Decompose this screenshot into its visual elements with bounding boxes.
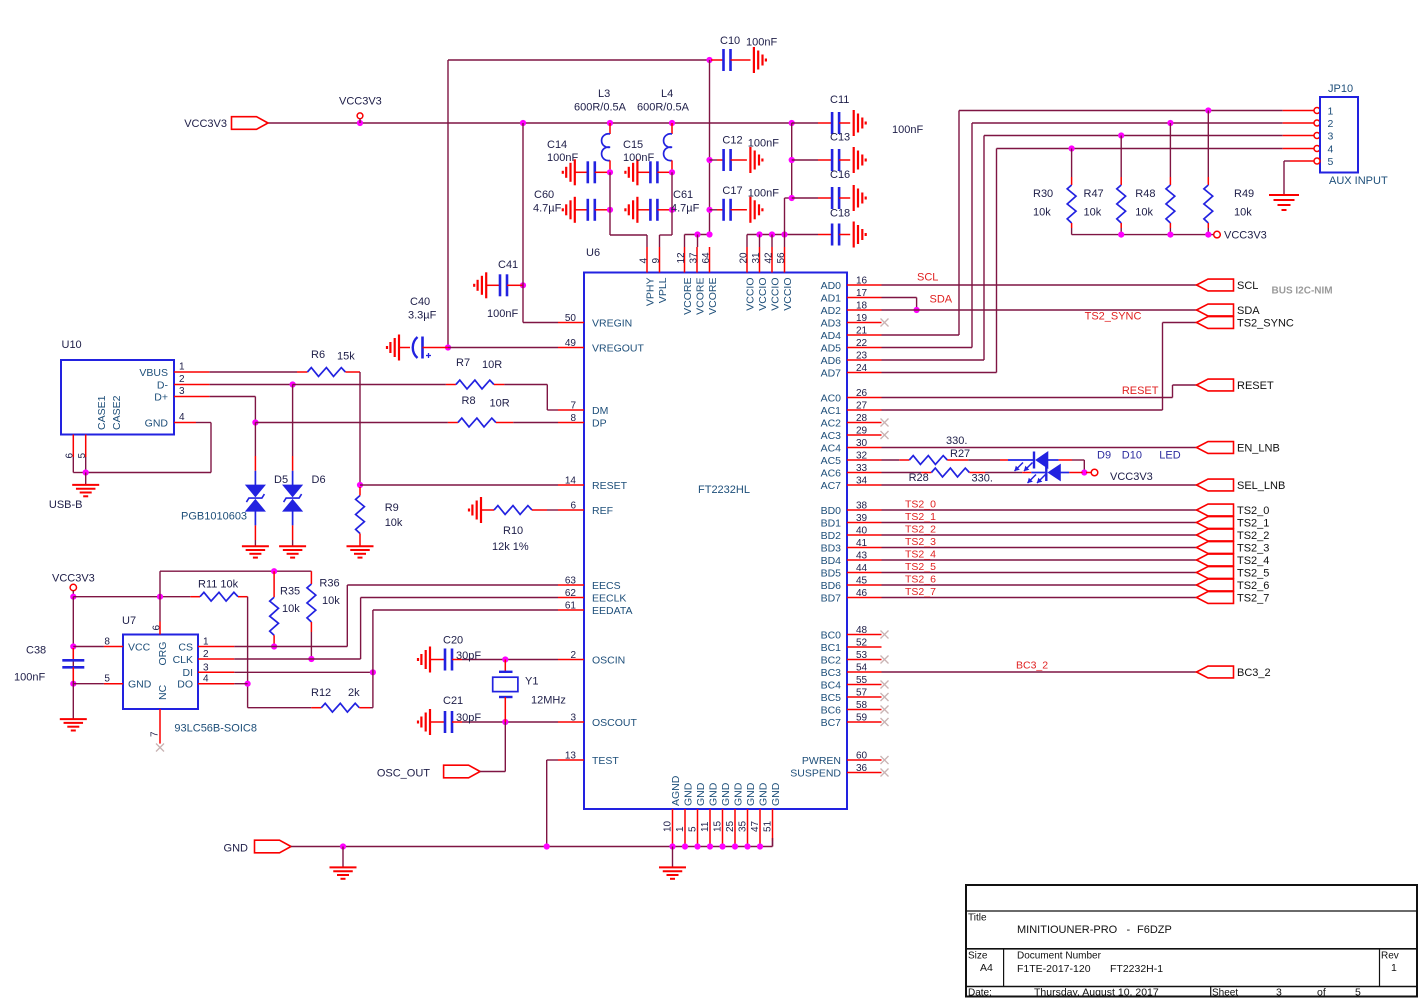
svg-text:30: 30 xyxy=(856,438,868,449)
svg-text:5: 5 xyxy=(688,826,699,832)
svg-text:C16: C16 xyxy=(830,169,850,181)
svg-text:55: 55 xyxy=(856,675,868,686)
svg-text:U7: U7 xyxy=(122,615,136,627)
svg-text:10R: 10R xyxy=(482,359,502,371)
svg-text:TS2_3: TS2_3 xyxy=(905,536,936,548)
svg-text:330.: 330. xyxy=(946,435,967,447)
svg-text:40: 40 xyxy=(856,526,868,537)
svg-text:3: 3 xyxy=(570,713,576,724)
svg-text:AC7: AC7 xyxy=(821,480,842,492)
svg-text:C17: C17 xyxy=(722,185,742,197)
svg-text:AD5: AD5 xyxy=(821,342,842,354)
svg-text:C15: C15 xyxy=(623,139,643,151)
svg-text:BC1: BC1 xyxy=(821,642,842,654)
svg-text:10k: 10k xyxy=(1084,207,1102,219)
svg-text:16: 16 xyxy=(856,276,868,287)
svg-text:24: 24 xyxy=(856,363,868,374)
svg-text:A4: A4 xyxy=(980,962,993,974)
svg-text:10k: 10k xyxy=(322,595,340,607)
svg-text:VREGOUT: VREGOUT xyxy=(592,342,645,354)
svg-text:CLK: CLK xyxy=(173,654,193,666)
svg-text:CASE1: CASE1 xyxy=(96,395,108,430)
svg-text:BD5: BD5 xyxy=(821,567,842,579)
svg-text:AD3: AD3 xyxy=(821,317,842,329)
svg-text:59: 59 xyxy=(856,713,868,724)
svg-text:BC7: BC7 xyxy=(821,717,842,729)
svg-text:TS2_3: TS2_3 xyxy=(1237,543,1269,555)
svg-text:R7: R7 xyxy=(456,357,470,369)
svg-text:AC4: AC4 xyxy=(821,442,842,454)
svg-text:AC2: AC2 xyxy=(821,417,842,429)
svg-text:TS2_1: TS2_1 xyxy=(905,511,936,523)
svg-text:52: 52 xyxy=(856,638,868,649)
svg-text:93LC56B-SOIC8: 93LC56B-SOIC8 xyxy=(174,723,257,735)
svg-text:TS2_1: TS2_1 xyxy=(1237,518,1269,530)
svg-text:Date:: Date: xyxy=(968,988,992,999)
svg-text:57: 57 xyxy=(856,688,868,699)
svg-text:50: 50 xyxy=(565,313,577,324)
svg-text:TS2_5: TS2_5 xyxy=(905,561,936,573)
svg-text:18: 18 xyxy=(856,301,868,312)
svg-text:100nF: 100nF xyxy=(748,188,779,200)
svg-text:-: - xyxy=(1127,924,1131,936)
svg-text:46: 46 xyxy=(856,588,868,599)
svg-text:Sheet: Sheet xyxy=(1212,988,1238,999)
svg-text:GND: GND xyxy=(720,782,732,806)
svg-text:AC5: AC5 xyxy=(821,455,842,467)
svg-text:D6: D6 xyxy=(312,474,326,486)
svg-text:R10: R10 xyxy=(503,525,523,537)
svg-text:42: 42 xyxy=(764,252,775,264)
svg-text:Rev: Rev xyxy=(1381,951,1399,962)
svg-text:C60: C60 xyxy=(534,189,554,201)
svg-text:53: 53 xyxy=(856,650,868,661)
svg-text:GND: GND xyxy=(770,782,782,806)
svg-text:AD6: AD6 xyxy=(821,355,842,367)
svg-text:44: 44 xyxy=(856,563,868,574)
svg-text:L4: L4 xyxy=(661,88,673,100)
svg-text:BD1: BD1 xyxy=(821,517,842,529)
svg-text:U6: U6 xyxy=(586,247,600,259)
svg-text:VCC3V3: VCC3V3 xyxy=(184,118,227,130)
svg-text:2: 2 xyxy=(1328,118,1334,130)
svg-text:BC4: BC4 xyxy=(821,679,842,691)
svg-text:10k: 10k xyxy=(385,517,403,529)
svg-text:30pF: 30pF xyxy=(456,650,481,662)
svg-text:TS2_5: TS2_5 xyxy=(1237,568,1269,580)
svg-text:CASE2: CASE2 xyxy=(111,395,123,430)
svg-text:10k: 10k xyxy=(282,603,300,615)
svg-text:AC6: AC6 xyxy=(821,467,842,479)
svg-text:FT2232H-1: FT2232H-1 xyxy=(1110,963,1163,975)
svg-text:6: 6 xyxy=(570,501,576,512)
svg-text:2: 2 xyxy=(570,650,576,661)
svg-text:1: 1 xyxy=(675,826,686,832)
svg-text:8: 8 xyxy=(570,413,576,424)
svg-text:VCC3V3: VCC3V3 xyxy=(339,96,382,108)
svg-text:BD4: BD4 xyxy=(821,555,842,567)
svg-text:28: 28 xyxy=(856,413,868,424)
svg-text:32: 32 xyxy=(856,451,868,462)
svg-text:10: 10 xyxy=(663,820,674,832)
svg-text:AD1: AD1 xyxy=(821,292,842,304)
svg-text:VCCIO: VCCIO xyxy=(782,278,794,311)
svg-text:330.: 330. xyxy=(972,473,993,485)
svg-text:PGB1010603: PGB1010603 xyxy=(181,511,247,523)
svg-text:600R/0.5A: 600R/0.5A xyxy=(574,102,627,114)
svg-text:OSCOUT: OSCOUT xyxy=(592,717,638,729)
svg-text:29: 29 xyxy=(856,426,868,437)
svg-text:100nF: 100nF xyxy=(746,37,777,49)
svg-text:R47: R47 xyxy=(1084,188,1104,200)
svg-text:34: 34 xyxy=(856,476,868,487)
svg-text:4: 4 xyxy=(639,258,650,264)
svg-text:R8: R8 xyxy=(462,395,476,407)
svg-text:61: 61 xyxy=(565,601,577,612)
svg-text:BC3_2: BC3_2 xyxy=(1237,667,1271,679)
svg-text:49: 49 xyxy=(565,338,577,349)
svg-text:DO: DO xyxy=(177,679,193,691)
svg-text:SEL_LNB: SEL_LNB xyxy=(1237,480,1285,492)
svg-text:EECS: EECS xyxy=(592,580,621,592)
svg-text:5: 5 xyxy=(1328,156,1334,168)
svg-text:11: 11 xyxy=(700,821,711,832)
svg-text:AC3: AC3 xyxy=(821,430,842,442)
svg-text:PWREN: PWREN xyxy=(802,755,841,767)
svg-text:BD3: BD3 xyxy=(821,542,842,554)
svg-text:54: 54 xyxy=(856,663,868,674)
svg-text:23: 23 xyxy=(856,351,868,362)
svg-text:C11: C11 xyxy=(830,94,849,106)
svg-text:3.3µF: 3.3µF xyxy=(408,310,437,322)
svg-text:58: 58 xyxy=(856,700,868,711)
svg-text:30pF: 30pF xyxy=(456,712,481,724)
svg-text:SCL: SCL xyxy=(917,272,938,284)
svg-text:45: 45 xyxy=(856,576,868,587)
svg-text:51: 51 xyxy=(763,820,774,832)
svg-text:R35: R35 xyxy=(280,586,300,598)
svg-text:TS2_4: TS2_4 xyxy=(1237,555,1269,567)
svg-text:ORG: ORG xyxy=(157,642,169,666)
svg-text:600R/0.5A: 600R/0.5A xyxy=(637,102,690,114)
svg-text:C41: C41 xyxy=(498,259,518,271)
svg-text:15k: 15k xyxy=(337,351,355,363)
svg-text:R49: R49 xyxy=(1234,188,1254,200)
svg-text:GND: GND xyxy=(707,782,719,806)
svg-text:VCC3V3: VCC3V3 xyxy=(52,573,95,585)
svg-text:Title: Title xyxy=(968,913,987,924)
svg-text:TS2_7: TS2_7 xyxy=(905,586,936,598)
svg-text:VCC3V3: VCC3V3 xyxy=(1110,471,1153,483)
svg-text:RESET: RESET xyxy=(1237,380,1274,392)
svg-text:GND: GND xyxy=(682,782,694,806)
svg-text:12k 1%: 12k 1% xyxy=(492,541,529,553)
svg-text:C38: C38 xyxy=(26,645,46,657)
svg-text:AC0: AC0 xyxy=(821,392,842,404)
svg-text:14: 14 xyxy=(565,476,577,487)
svg-text:17: 17 xyxy=(856,288,868,299)
svg-text:5: 5 xyxy=(1355,987,1361,999)
svg-text:27: 27 xyxy=(856,401,868,412)
svg-text:AD2: AD2 xyxy=(821,305,842,317)
svg-text:GND: GND xyxy=(732,782,744,806)
svg-text:4.7µF: 4.7µF xyxy=(671,203,700,215)
svg-text:DM: DM xyxy=(592,405,608,417)
svg-text:VBUS: VBUS xyxy=(139,367,168,379)
svg-text:31: 31 xyxy=(751,252,762,264)
svg-text:GND: GND xyxy=(695,782,707,806)
svg-text:D10: D10 xyxy=(1122,450,1142,462)
svg-text:TS2_SYNC: TS2_SYNC xyxy=(1085,311,1142,323)
svg-text:BC0: BC0 xyxy=(821,629,842,641)
svg-text:CS: CS xyxy=(178,641,193,653)
svg-text:R12: R12 xyxy=(311,687,331,699)
svg-text:VREGIN: VREGIN xyxy=(592,317,632,329)
svg-text:F6DZP: F6DZP xyxy=(1137,924,1172,936)
svg-text:33: 33 xyxy=(856,463,868,474)
svg-text:VCORE: VCORE xyxy=(694,278,706,315)
svg-text:TS2_6: TS2_6 xyxy=(1237,580,1269,592)
svg-text:10R: 10R xyxy=(490,398,510,410)
svg-text:100nF: 100nF xyxy=(547,152,578,164)
svg-text:13: 13 xyxy=(565,751,577,762)
svg-text:R6: R6 xyxy=(311,349,325,361)
svg-text:TS2_SYNC: TS2_SYNC xyxy=(1237,318,1294,330)
svg-text:FT2232HL: FT2232HL xyxy=(698,484,750,496)
svg-text:VCORE: VCORE xyxy=(707,278,719,315)
svg-text:REF: REF xyxy=(592,505,613,517)
svg-text:9: 9 xyxy=(651,258,662,264)
svg-text:TS2_7: TS2_7 xyxy=(1237,593,1269,605)
svg-text:TS2_2: TS2_2 xyxy=(905,524,936,536)
svg-text:10k: 10k xyxy=(1234,207,1252,219)
svg-text:22: 22 xyxy=(856,338,868,349)
svg-text:SDA: SDA xyxy=(930,294,953,306)
svg-text:TS2_2: TS2_2 xyxy=(1237,530,1269,542)
svg-text:60: 60 xyxy=(856,751,868,762)
svg-text:3: 3 xyxy=(179,386,185,397)
svg-text:R28: R28 xyxy=(909,472,929,484)
svg-text:RESET: RESET xyxy=(592,480,628,492)
svg-text:C40: C40 xyxy=(410,296,430,308)
svg-text:D9: D9 xyxy=(1097,450,1111,462)
svg-text:MINITIOUNER-PRO: MINITIOUNER-PRO xyxy=(1017,924,1118,936)
svg-text:SDA: SDA xyxy=(1237,305,1260,317)
svg-text:BC5: BC5 xyxy=(821,692,842,704)
svg-text:TS2_0: TS2_0 xyxy=(1237,505,1269,517)
svg-text:VCCIO: VCCIO xyxy=(769,278,781,311)
svg-text:GND: GND xyxy=(128,679,152,691)
svg-text:100nF: 100nF xyxy=(892,124,923,136)
svg-text:BD2: BD2 xyxy=(821,530,842,542)
svg-text:C20: C20 xyxy=(443,635,463,647)
svg-text:C12: C12 xyxy=(722,135,742,147)
svg-text:of: of xyxy=(1317,987,1326,999)
svg-text:15: 15 xyxy=(713,820,724,832)
svg-text:OSCIN: OSCIN xyxy=(592,654,625,666)
svg-text:D-: D- xyxy=(157,379,169,391)
svg-text:Document Number: Document Number xyxy=(1017,951,1102,962)
svg-text:EN_LNB: EN_LNB xyxy=(1237,443,1280,455)
svg-text:43: 43 xyxy=(856,551,868,562)
svg-text:100nF: 100nF xyxy=(623,152,654,164)
svg-text:R48: R48 xyxy=(1135,188,1155,200)
svg-text:BD7: BD7 xyxy=(821,592,842,604)
svg-text:VCC: VCC xyxy=(128,641,151,653)
svg-text:USB-B: USB-B xyxy=(49,499,83,511)
svg-text:JP10: JP10 xyxy=(1328,83,1353,95)
svg-text:Y1: Y1 xyxy=(525,676,538,688)
svg-text:C18: C18 xyxy=(830,208,850,220)
svg-text:VCC3V3: VCC3V3 xyxy=(1224,230,1267,242)
svg-text:VPLL: VPLL xyxy=(657,277,669,303)
svg-text:4: 4 xyxy=(1328,143,1334,155)
svg-text:R11 10k: R11 10k xyxy=(198,579,239,591)
svg-text:35: 35 xyxy=(738,820,749,832)
svg-text:38: 38 xyxy=(856,501,868,512)
svg-text:LED: LED xyxy=(1159,450,1180,462)
svg-text:100nF: 100nF xyxy=(748,138,779,150)
svg-text:48: 48 xyxy=(856,625,868,636)
svg-text:VCCIO: VCCIO xyxy=(744,278,756,311)
svg-text:12: 12 xyxy=(676,252,687,264)
svg-text:7: 7 xyxy=(570,401,576,412)
svg-text:Thursday, August 10, 2017: Thursday, August 10, 2017 xyxy=(1034,987,1159,999)
svg-text:21: 21 xyxy=(856,326,868,337)
svg-text:25: 25 xyxy=(725,820,736,832)
svg-text:EEDATA: EEDATA xyxy=(592,605,632,617)
svg-text:R30: R30 xyxy=(1033,188,1053,200)
svg-text:D+: D+ xyxy=(154,391,168,403)
svg-text:EECLK: EECLK xyxy=(592,592,626,604)
svg-text:2: 2 xyxy=(179,374,185,385)
svg-text:L3: L3 xyxy=(598,88,610,100)
svg-text:56: 56 xyxy=(776,252,787,264)
svg-text:10k: 10k xyxy=(1033,207,1051,219)
svg-text:GND: GND xyxy=(224,843,249,855)
svg-text:BUS I2C-NIM: BUS I2C-NIM xyxy=(1272,286,1333,297)
svg-text:37: 37 xyxy=(689,252,700,264)
svg-text:2k: 2k xyxy=(348,687,360,699)
svg-text:10k: 10k xyxy=(1135,207,1153,219)
svg-text:F1TE-2017-120: F1TE-2017-120 xyxy=(1017,963,1091,975)
svg-text:3: 3 xyxy=(1276,987,1282,999)
svg-text:C13: C13 xyxy=(830,132,850,144)
svg-text:SUSPEND: SUSPEND xyxy=(790,767,841,779)
svg-text:R36: R36 xyxy=(319,578,339,590)
svg-text:100nF: 100nF xyxy=(487,308,518,320)
svg-text:C61: C61 xyxy=(673,189,693,201)
svg-text:U10: U10 xyxy=(62,339,82,351)
svg-text:20: 20 xyxy=(739,252,750,264)
svg-text:C21: C21 xyxy=(443,695,463,707)
svg-text:D5: D5 xyxy=(274,474,288,486)
svg-text:BC3_2: BC3_2 xyxy=(1016,660,1048,672)
svg-text:36: 36 xyxy=(856,763,868,774)
svg-text:BC6: BC6 xyxy=(821,704,842,716)
svg-text:AC1: AC1 xyxy=(821,405,842,417)
svg-text:VCCIO: VCCIO xyxy=(757,278,769,311)
svg-text:C14: C14 xyxy=(547,139,567,151)
svg-text:NC: NC xyxy=(157,684,169,700)
svg-text:VPHY: VPHY xyxy=(644,278,656,307)
svg-text:1: 1 xyxy=(1328,105,1334,117)
svg-text:100nF: 100nF xyxy=(14,672,45,684)
svg-text:TEST: TEST xyxy=(592,755,619,767)
svg-text:GND: GND xyxy=(145,417,169,429)
svg-text:OSC_OUT: OSC_OUT xyxy=(377,768,430,780)
svg-text:SCL: SCL xyxy=(1237,280,1258,292)
svg-text:1: 1 xyxy=(179,362,185,373)
svg-text:39: 39 xyxy=(856,513,868,524)
svg-text:26: 26 xyxy=(856,388,868,399)
svg-text:DI: DI xyxy=(183,667,194,679)
svg-text:12MHz: 12MHz xyxy=(531,695,566,707)
svg-text:TS2_6: TS2_6 xyxy=(905,574,936,586)
svg-text:4.7µF: 4.7µF xyxy=(533,203,562,215)
svg-text:RESET: RESET xyxy=(1122,385,1159,397)
svg-text:C10: C10 xyxy=(720,35,740,47)
svg-text:7: 7 xyxy=(150,731,161,737)
svg-text:3: 3 xyxy=(1328,130,1334,142)
svg-text:R27: R27 xyxy=(950,448,970,460)
svg-text:AD7: AD7 xyxy=(821,367,842,379)
svg-text:TS2_4: TS2_4 xyxy=(905,549,936,561)
svg-text:BC3: BC3 xyxy=(821,667,842,679)
svg-text:R9: R9 xyxy=(385,502,399,514)
svg-text:BD6: BD6 xyxy=(821,580,842,592)
svg-text:VCORE: VCORE xyxy=(682,278,694,315)
svg-text:GND: GND xyxy=(745,782,757,806)
svg-text:TS2_0: TS2_0 xyxy=(905,499,936,511)
svg-text:47: 47 xyxy=(750,820,761,832)
svg-text:AUX INPUT: AUX INPUT xyxy=(1329,175,1388,187)
svg-text:BD0: BD0 xyxy=(821,505,842,517)
svg-text:4: 4 xyxy=(179,412,185,423)
svg-text:19: 19 xyxy=(856,313,868,324)
svg-text:AD4: AD4 xyxy=(821,330,842,342)
svg-text:1: 1 xyxy=(1391,962,1397,974)
svg-text:AD0: AD0 xyxy=(821,280,842,292)
svg-text:41: 41 xyxy=(856,538,868,549)
svg-text:DP: DP xyxy=(592,417,607,429)
svg-text:64: 64 xyxy=(701,252,712,264)
svg-text:BC2: BC2 xyxy=(821,654,842,666)
svg-text:AGND: AGND xyxy=(670,775,682,806)
svg-text:GND: GND xyxy=(757,782,769,806)
svg-text:63: 63 xyxy=(565,576,577,587)
svg-text:62: 62 xyxy=(565,588,577,599)
svg-text:Size: Size xyxy=(968,951,988,962)
